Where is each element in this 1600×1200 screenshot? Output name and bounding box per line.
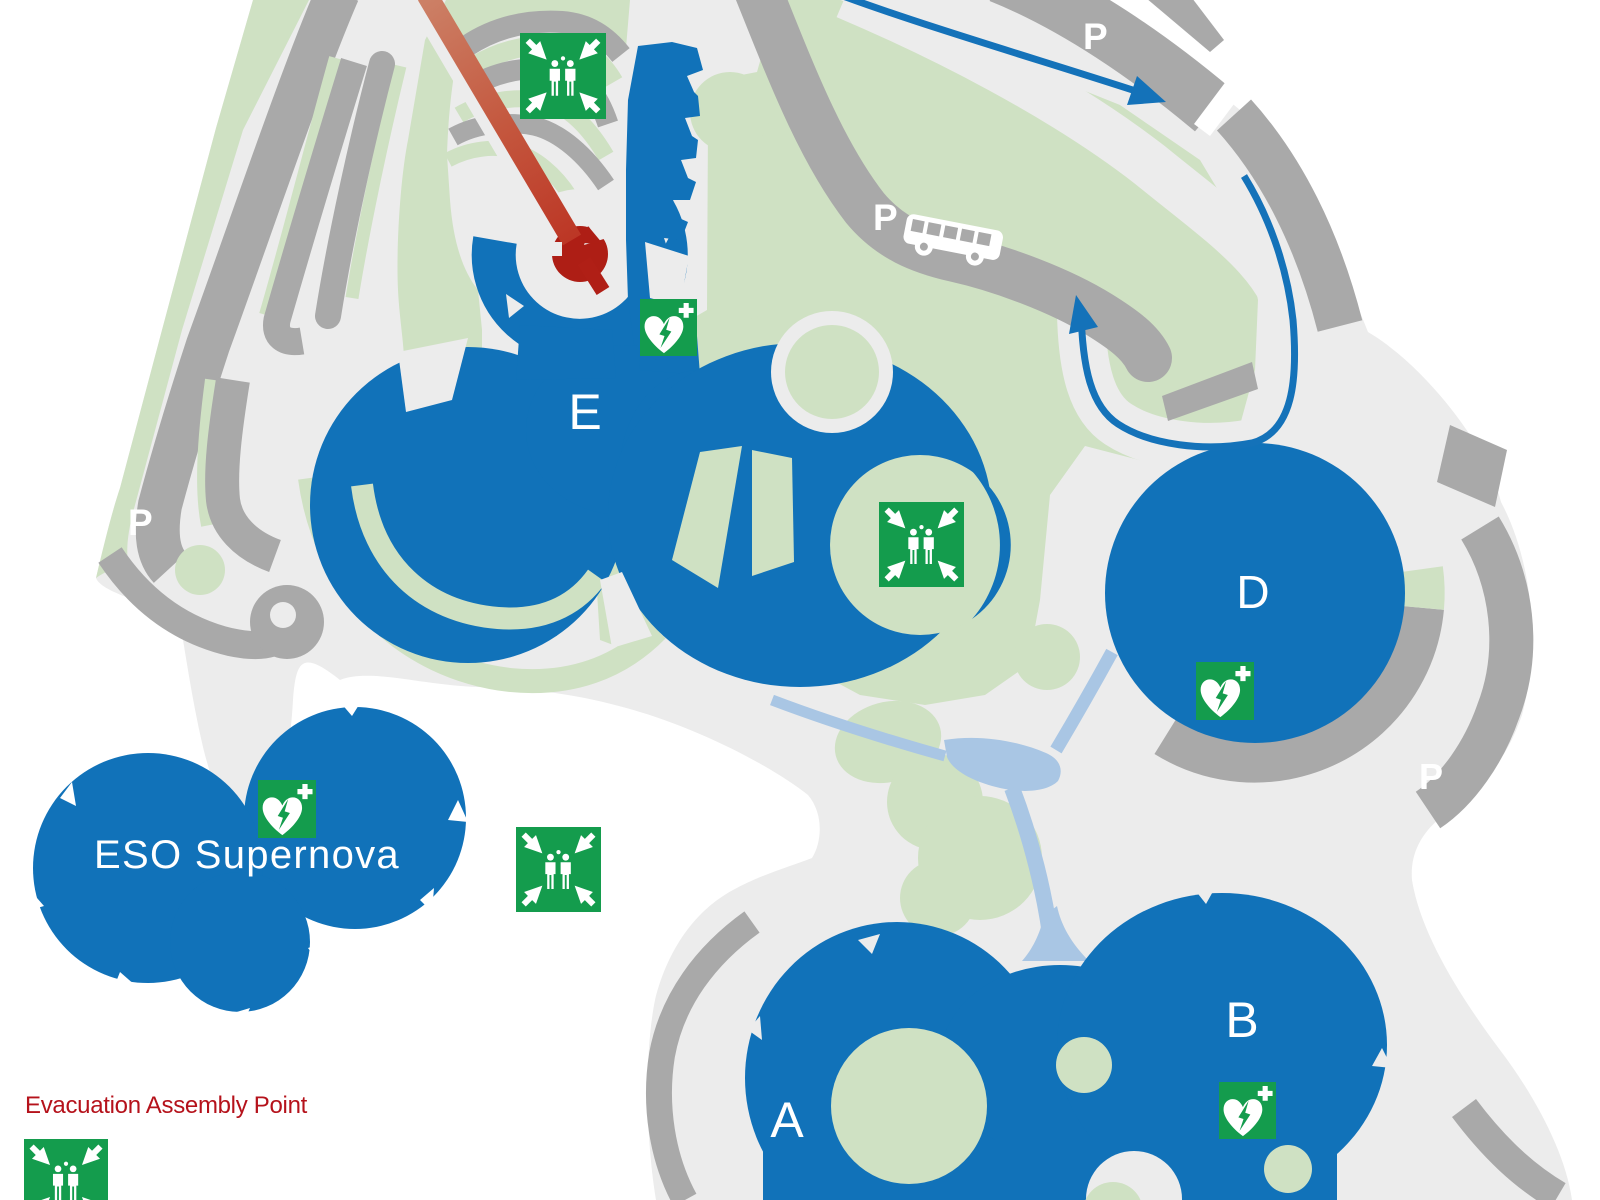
svg-text:P: P: [1083, 16, 1108, 57]
svg-text:P: P: [873, 197, 898, 238]
svg-text:P: P: [1419, 756, 1443, 797]
svg-text:Evacuation Assembly Point: Evacuation Assembly Point: [25, 1092, 308, 1119]
svg-text:B: B: [1225, 992, 1258, 1048]
svg-text:A: A: [770, 1092, 804, 1148]
svg-text:D: D: [1236, 566, 1269, 618]
svg-text:ESO Supernova: ESO Supernova: [94, 833, 400, 877]
svg-text:P: P: [128, 502, 153, 543]
svg-text:E: E: [568, 384, 601, 440]
